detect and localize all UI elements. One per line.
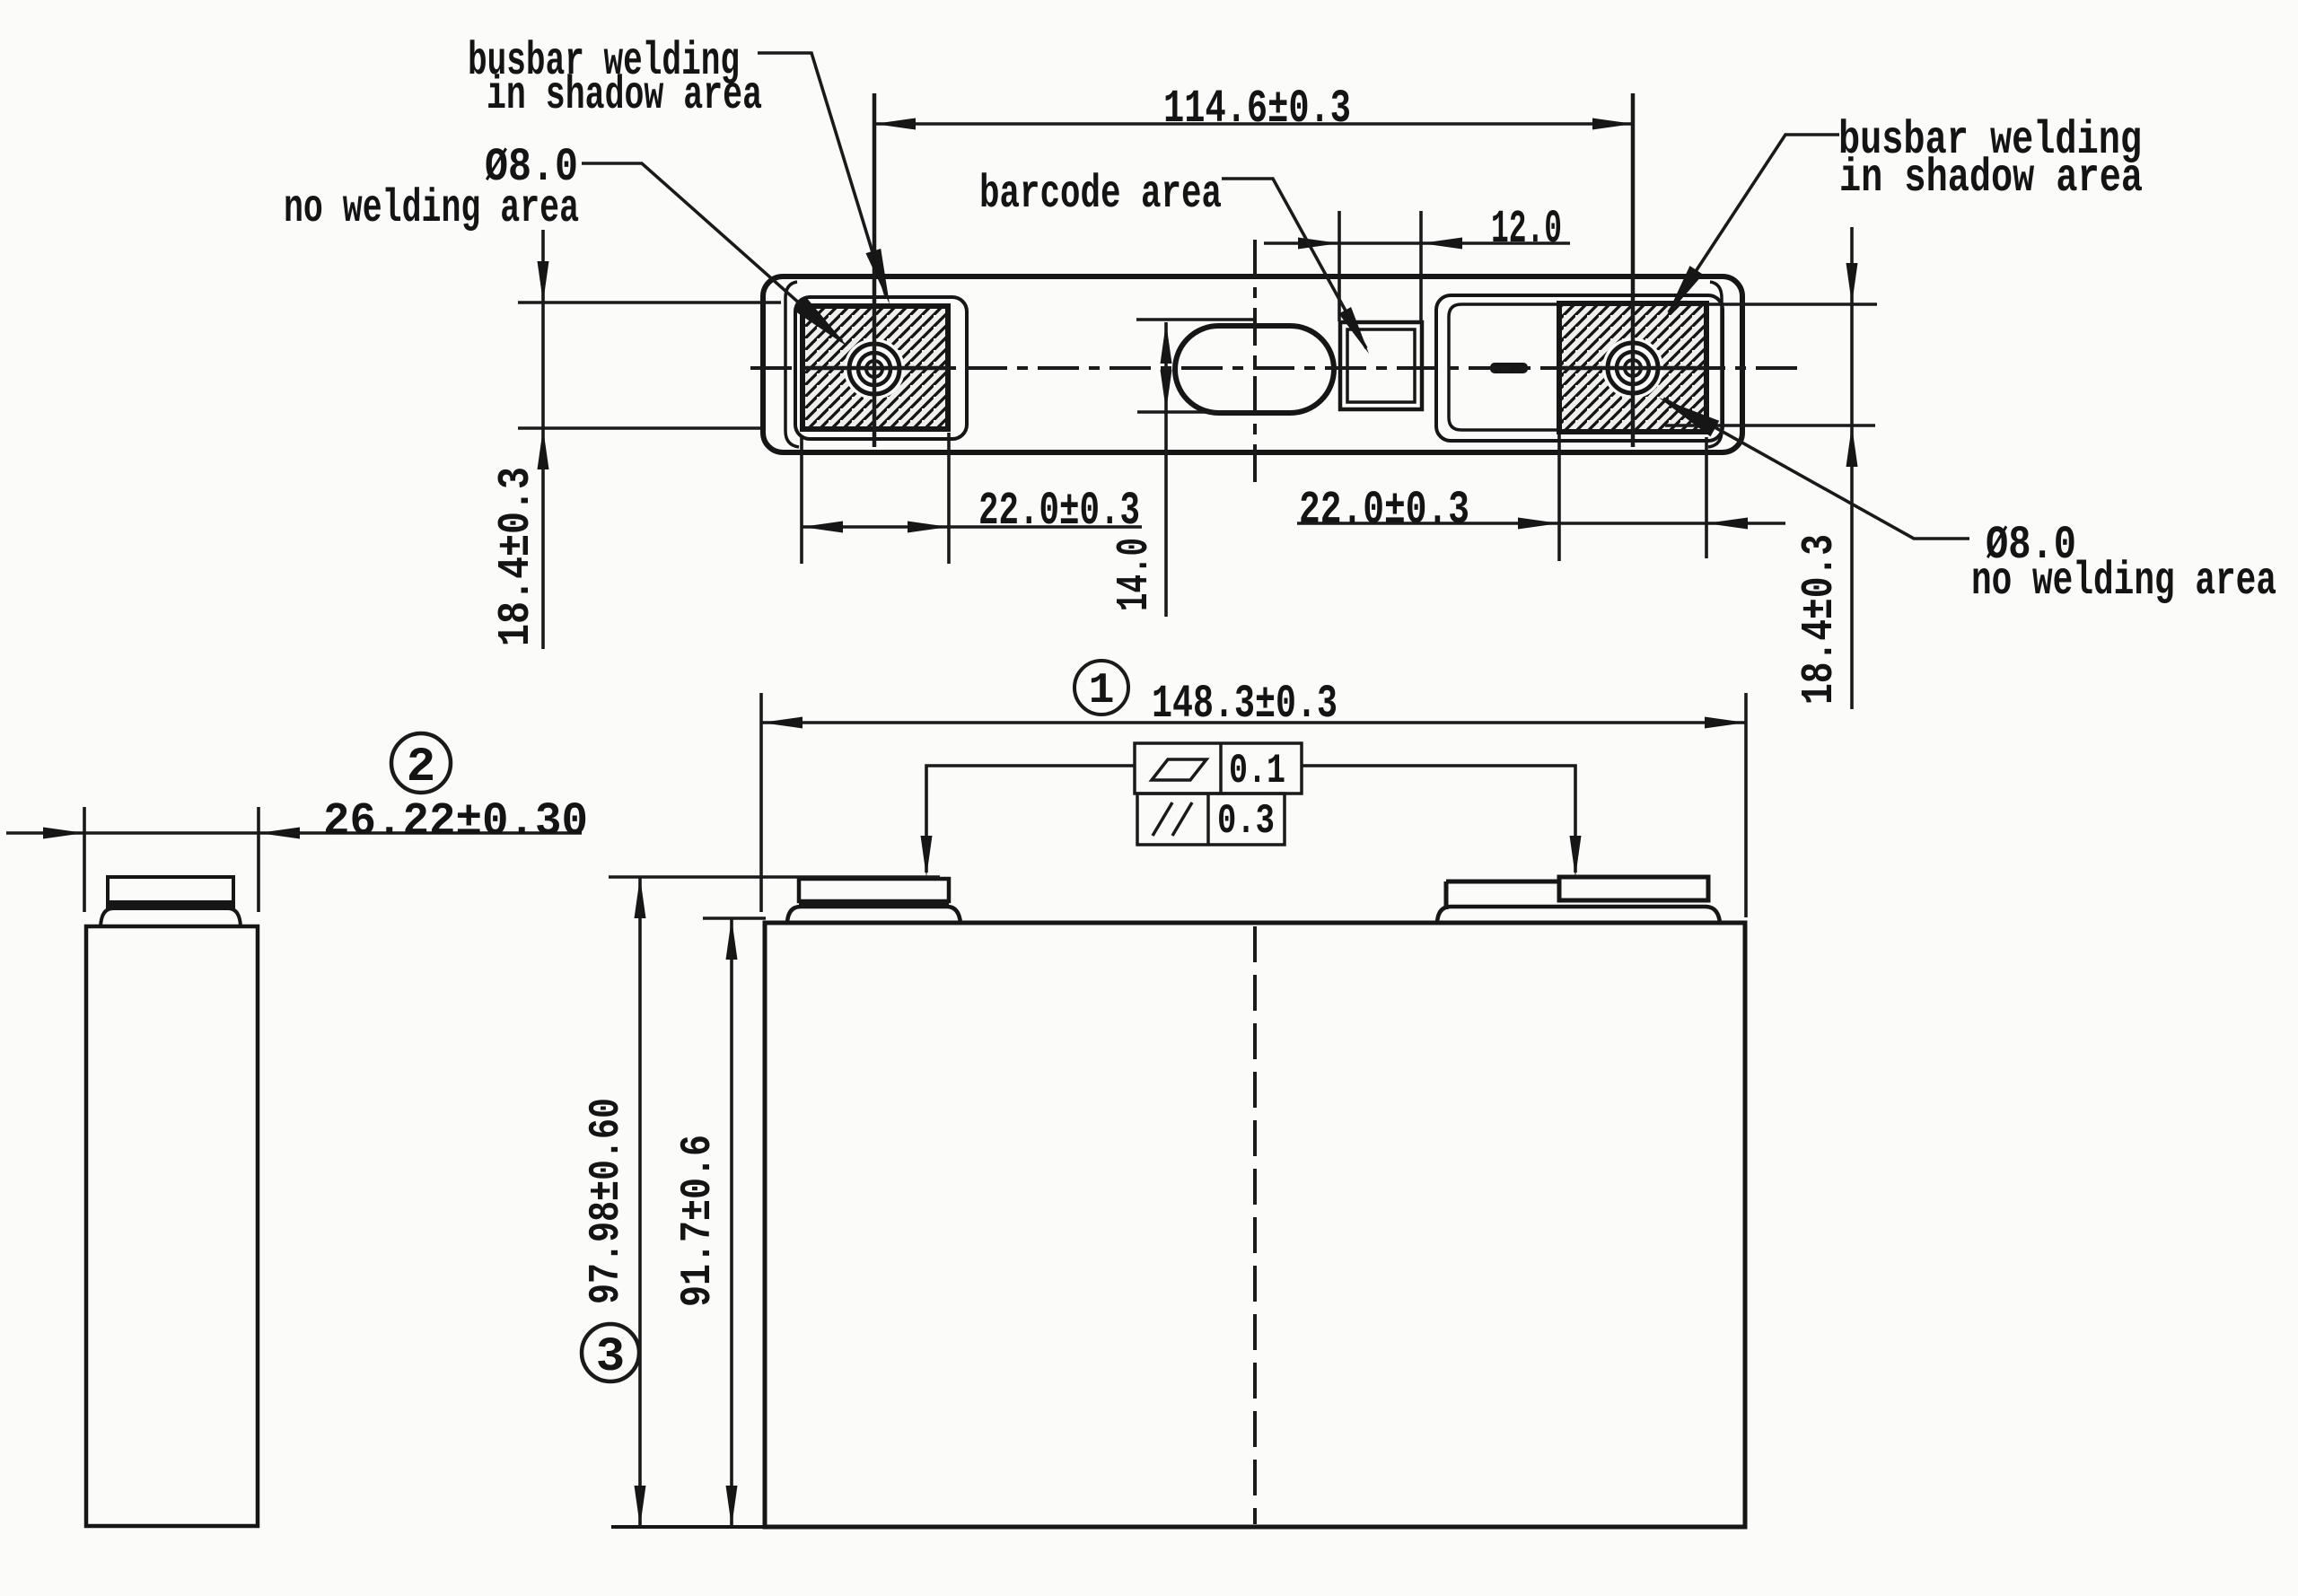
- svg-text:14.0: 14.0: [1110, 538, 1161, 611]
- svg-text:no welding area: no welding area: [284, 182, 579, 235]
- svg-text:0.3: 0.3: [1217, 798, 1275, 845]
- svg-text:97.98±0.60: 97.98±0.60: [583, 1098, 631, 1304]
- svg-text:18.4±0.3: 18.4±0.3: [491, 467, 542, 646]
- svg-text:114.6±0.3: 114.6±0.3: [1163, 83, 1351, 136]
- svg-text:0.1: 0.1: [1229, 748, 1285, 794]
- svg-text:2: 2: [407, 741, 435, 795]
- svg-text:26.22±0.30: 26.22±0.30: [323, 795, 588, 848]
- svg-text:148.3±0.3: 148.3±0.3: [1152, 678, 1338, 731]
- svg-text:3: 3: [596, 1330, 625, 1385]
- svg-text:22.0±0.3: 22.0±0.3: [1299, 484, 1469, 537]
- svg-text:no welding area: no welding area: [1971, 555, 2276, 608]
- svg-text:12.0: 12.0: [1491, 203, 1562, 256]
- svg-text:18.4±0.3: 18.4±0.3: [1794, 534, 1846, 705]
- svg-text:22.0±0.3: 22.0±0.3: [978, 485, 1140, 538]
- svg-text:in shadow area: in shadow area: [1839, 152, 2143, 205]
- svg-text:barcode area: barcode area: [979, 168, 1222, 221]
- svg-text:1: 1: [1089, 667, 1115, 715]
- svg-text:91.7±0.6: 91.7±0.6: [674, 1135, 723, 1307]
- svg-text:in shadow area: in shadow area: [487, 69, 762, 122]
